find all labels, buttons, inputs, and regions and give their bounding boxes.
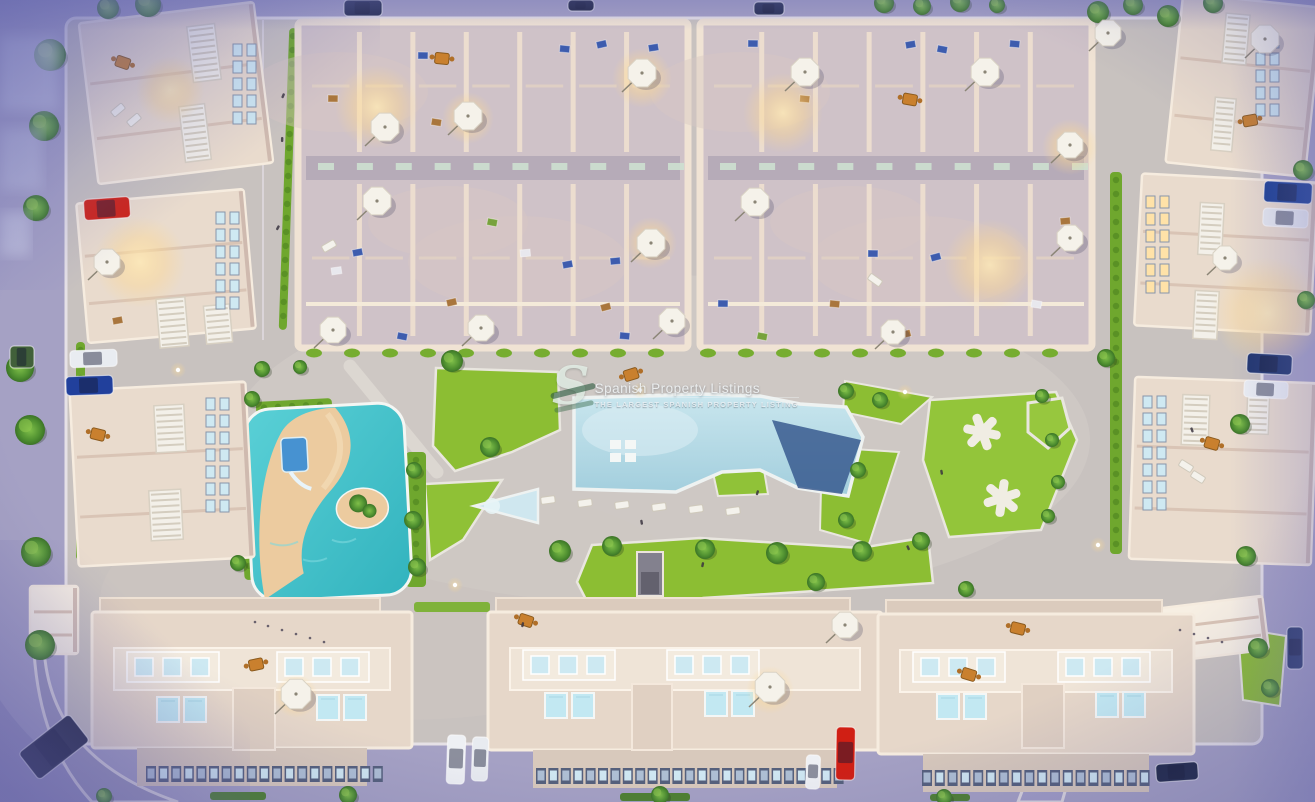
scene-svg	[0, 0, 1315, 802]
vignette	[0, 0, 1315, 802]
dusk-overlays	[0, 0, 1315, 802]
aerial-property-render: S Spanish Property Listings THE LARGEST …	[0, 0, 1315, 802]
